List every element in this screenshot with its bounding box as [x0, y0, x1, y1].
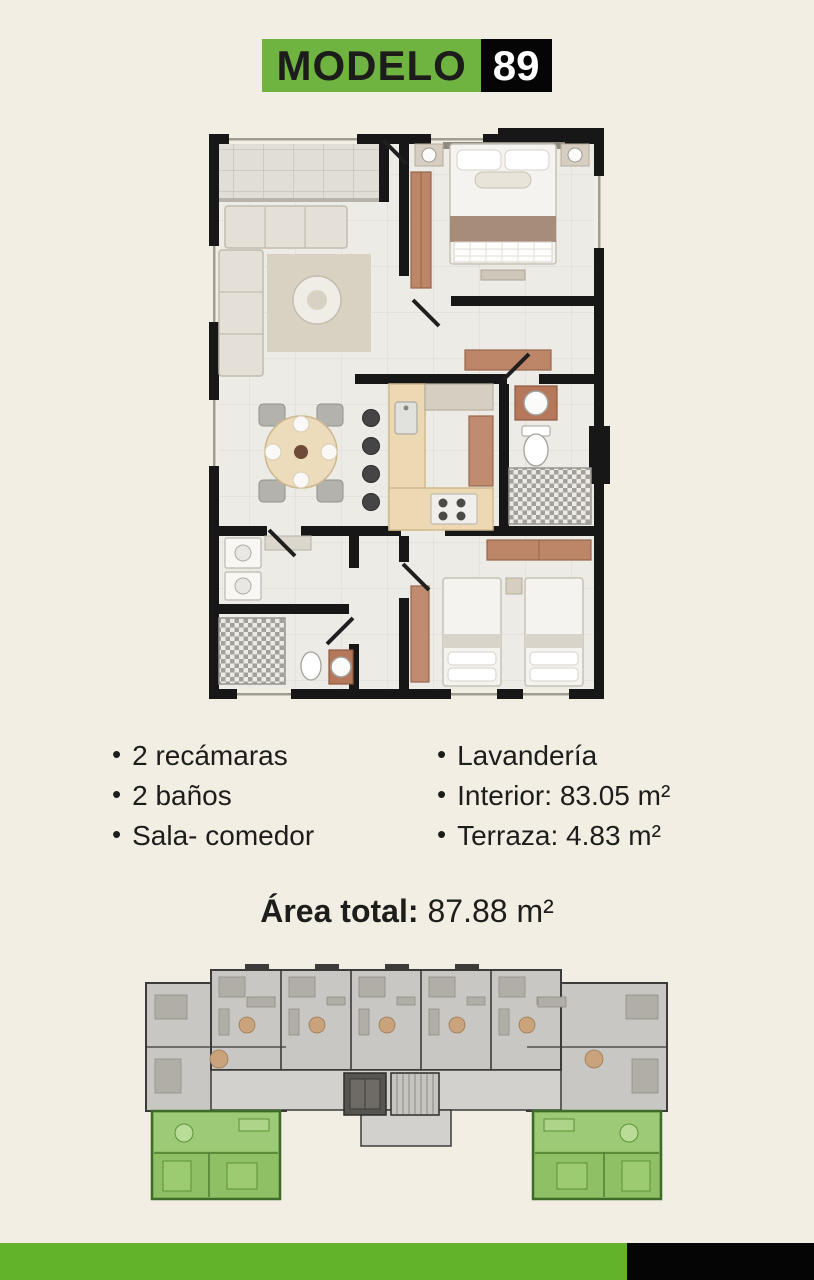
- model-title-number: 89: [481, 39, 552, 92]
- footer-strip-black: [627, 1243, 814, 1280]
- building-key-plan-container: [139, 963, 674, 1218]
- stairs: [391, 1073, 439, 1115]
- feature-list-left: 2 recámaras 2 baños Sala- comedor: [112, 736, 437, 856]
- total-area-label: Área total:: [260, 893, 418, 929]
- dining-area: [259, 404, 343, 502]
- feature-item: Terraza: 4.83 m²: [437, 816, 670, 856]
- feature-text: Interior: 83.05 m²: [457, 780, 670, 811]
- total-area: Área total:87.88 m²: [0, 893, 814, 930]
- feature-text: Sala- comedor: [132, 820, 314, 851]
- feature-item: 2 baños: [112, 776, 437, 816]
- feature-item: Sala- comedor: [112, 816, 437, 856]
- model-title: MODELO 89: [0, 39, 814, 92]
- feature-text: Terraza: 4.83 m²: [457, 820, 661, 851]
- feature-item: Lavandería: [437, 736, 670, 776]
- footer-strip-green: [0, 1243, 627, 1280]
- model-title-label: MODELO: [262, 39, 480, 92]
- highlighted-unit-left: [152, 1111, 280, 1199]
- highlighted-unit-right: [533, 1111, 661, 1199]
- terrace: [219, 139, 380, 202]
- total-area-value: 87.88 m²: [427, 893, 553, 929]
- feature-item: Interior: 83.05 m²: [437, 776, 670, 816]
- building-key-plan: [139, 963, 674, 1213]
- flyer-page: MODELO 89: [0, 0, 814, 1280]
- elevator: [344, 1073, 386, 1115]
- feature-lists: 2 recámaras 2 baños Sala- comedor Lavand…: [0, 736, 814, 856]
- feature-text: Lavandería: [457, 740, 597, 771]
- feature-list-right: Lavandería Interior: 83.05 m² Terraza: 4…: [437, 736, 670, 856]
- feature-text: 2 baños: [132, 780, 232, 811]
- feature-text: 2 recámaras: [132, 740, 288, 771]
- feature-item: 2 recámaras: [112, 736, 437, 776]
- unit-floor-plan-container: [203, 128, 610, 710]
- footer-strip: [0, 1243, 814, 1280]
- unit-floor-plan: [203, 128, 610, 705]
